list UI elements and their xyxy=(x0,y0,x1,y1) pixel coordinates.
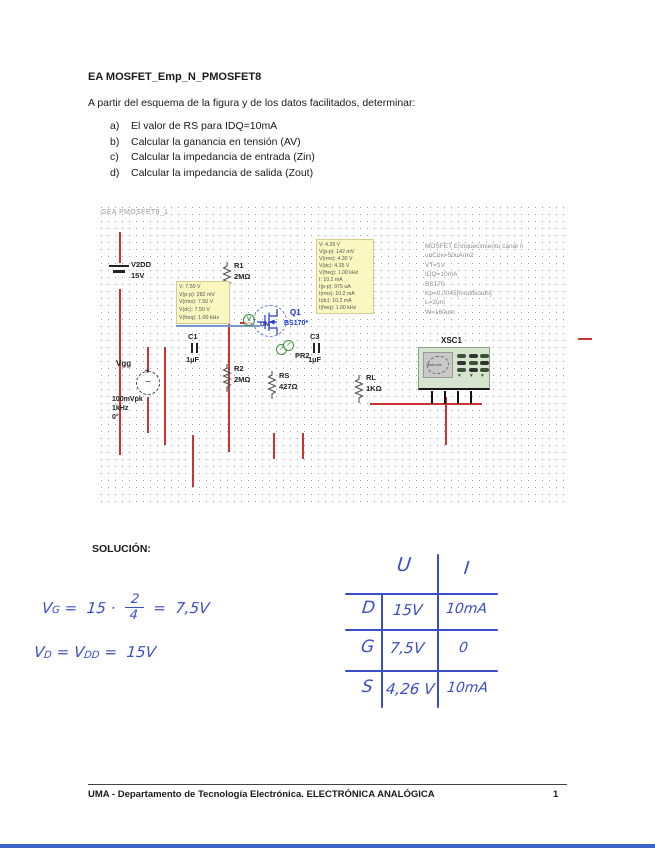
probe-line: V: 4.26 V xyxy=(319,242,371,249)
rs-ref: RS xyxy=(279,371,289,381)
scope-brand-text: Tektronix xyxy=(426,363,442,367)
probe-line: V(p-p): 282 mV xyxy=(179,292,227,300)
probe-line: V(dc): 7.50 V xyxy=(179,307,227,315)
footer-rule xyxy=(88,784,567,785)
current-probe-icon: ↗ xyxy=(283,340,294,351)
probe-line: V(rms): 4.30 V xyxy=(319,256,371,263)
scope-knob-icon: ▾ xyxy=(481,374,484,379)
row-label-d: D xyxy=(361,598,376,618)
battery-icon xyxy=(109,265,129,267)
scope-terminal xyxy=(444,391,446,404)
v2dd-ref: V2DD xyxy=(131,260,151,270)
eq-mid: = V xyxy=(51,643,85,661)
scope-knob-icon: ▾ xyxy=(458,374,461,379)
table-line xyxy=(437,554,439,708)
scope-terminal xyxy=(457,391,459,404)
row-label-g: G xyxy=(360,637,375,657)
item-label: a) xyxy=(110,120,131,136)
c1-ref: C1 xyxy=(188,332,198,342)
wire xyxy=(147,397,149,433)
probe-line: I(rms): 10.2 mA xyxy=(319,291,371,298)
scope-button xyxy=(469,368,478,372)
solution-table: U I D 15V 10mA G 7,5V 0 S 4,26 V 10mA xyxy=(345,552,513,712)
footer-text: UMA - Departamento de Tecnología Electró… xyxy=(88,789,435,800)
capacitor-icon xyxy=(191,343,193,353)
cell-s-u: 4,26 V xyxy=(385,680,435,698)
col-header-u: U xyxy=(396,554,412,576)
wire xyxy=(192,435,194,487)
probe-line: I: 10.2 mA xyxy=(319,277,371,284)
fraction: 24 xyxy=(124,592,145,623)
wire xyxy=(164,347,166,445)
probe-line: V: 7.50 V xyxy=(179,284,227,292)
vgg-phase: 0° xyxy=(112,413,119,423)
scope-button xyxy=(457,368,466,372)
fraction-denominator: 4 xyxy=(124,607,144,623)
circuit-schematic: GEA PMOSFET8_1 V2DD 15V Vgg ~ + 100mVpk … xyxy=(95,205,567,503)
row-label-s: S xyxy=(361,677,374,697)
r1-ref: R1 xyxy=(234,261,244,271)
wire xyxy=(370,403,482,405)
item-text: El valor de RS para IDQ=10mA xyxy=(131,120,277,136)
wire xyxy=(445,397,447,445)
eq-result: = 7,5V xyxy=(148,599,211,617)
plus-icon: + xyxy=(145,368,149,375)
solution-heading: SOLUCIÓN: xyxy=(92,543,151,555)
rl-ref: RL xyxy=(366,373,376,383)
rl-value: 1KΩ xyxy=(366,384,382,394)
resistor-icon xyxy=(267,371,277,399)
q1-net: DM xyxy=(260,320,270,330)
item-label: c) xyxy=(110,151,131,167)
scope-button xyxy=(469,361,478,365)
q1-value: BS170* xyxy=(284,319,308,329)
r2-value: 2MΩ xyxy=(234,375,250,385)
eq-result: = 15V xyxy=(99,643,157,661)
scope-button xyxy=(457,354,466,358)
probe-line: V(freq): 1.00 kHz xyxy=(319,270,371,277)
rs-value: 427Ω xyxy=(279,382,298,392)
probe-readout-box: V: 7.50 V V(p-p): 282 mV V(rms): 7.50 V … xyxy=(176,281,230,324)
table-line xyxy=(345,629,498,631)
eq-var-sub: D xyxy=(44,650,53,661)
oscilloscope-icon: Tektronix ▾ ▾ ▾ xyxy=(418,347,490,390)
equation-vd: VD = VDD = 15V xyxy=(33,643,157,661)
eq-mid: = 15 · xyxy=(59,599,121,617)
mosfet-parameters: MOSFET Enriquecimiento canal n unCox=50u… xyxy=(425,242,565,317)
c3-ref: C3 xyxy=(310,332,320,342)
c3-value: 1µF xyxy=(308,355,321,365)
table-line xyxy=(381,593,383,708)
param-line: W=160um xyxy=(425,308,565,317)
resistor-icon xyxy=(222,364,232,392)
cell-d-i: 10mA xyxy=(445,601,488,617)
scope-button xyxy=(469,354,478,358)
probe-line: V(freq): 1.00 kHz xyxy=(179,315,227,323)
param-line: L=2um xyxy=(425,298,565,307)
c1-value: 1µF xyxy=(186,355,199,365)
cell-s-i: 10mA xyxy=(446,680,489,696)
probe-line: V(p-p): 142 mV xyxy=(319,249,371,256)
cell-g-u: 7,5V xyxy=(389,639,425,657)
probe-line: I(dc): 10.2 mA xyxy=(319,298,371,305)
scope-button xyxy=(457,361,466,365)
r1-value: 2MΩ xyxy=(234,272,250,282)
wire xyxy=(119,289,121,455)
capacitor-icon xyxy=(313,343,315,353)
oscilloscope-screen: Tektronix xyxy=(423,352,453,378)
vgg-ref: Vgg xyxy=(116,359,131,369)
list-item: a) El valor de RS para IDQ=10mA xyxy=(110,120,315,136)
probe-line: I(p-p): 975 uA xyxy=(319,284,371,291)
param-line: MOSFET Enriquecimiento canal n xyxy=(425,242,565,251)
scope-button xyxy=(480,368,489,372)
wire xyxy=(119,232,121,263)
r2-ref: R2 xyxy=(234,364,244,374)
table-line xyxy=(345,670,498,672)
col-header-i: I xyxy=(463,558,471,579)
capacitor-icon xyxy=(196,343,198,353)
param-line: Kp=0,0045[modificado] xyxy=(425,289,565,298)
capacitor-icon xyxy=(318,343,320,353)
page-title: EA MOSFET_Emp_N_PMOSFET8 xyxy=(88,71,261,83)
item-label: d) xyxy=(110,167,131,183)
document-page: EA MOSFET_Emp_N_PMOSFET8 A partir del es… xyxy=(0,0,655,848)
window-bottom-edge xyxy=(0,844,655,848)
wire xyxy=(578,338,592,340)
page-number: 1 xyxy=(553,789,558,800)
probe-line: V(dc): 4.35 V xyxy=(319,263,371,270)
question-list: a) El valor de RS para IDQ=10mA b) Calcu… xyxy=(110,120,315,182)
schematic-title: GEA PMOSFET8_1 xyxy=(101,209,168,216)
item-text: Calcular la impedancia de entrada (Zin) xyxy=(131,151,315,167)
list-item: d) Calcular la impedancia de salida (Zou… xyxy=(110,167,315,183)
scope-button xyxy=(480,354,489,358)
equation-vg: VG = 15 · 24 = 7,5V xyxy=(41,592,211,623)
cell-g-i: 0 xyxy=(458,640,469,656)
list-item: b) Calcular la ganancia en tensión (AV) xyxy=(110,136,315,152)
v2dd-value: 15V xyxy=(131,271,144,281)
fraction-numerator: 2 xyxy=(130,592,140,607)
wire xyxy=(302,433,304,459)
item-text: Calcular la ganancia en tensión (AV) xyxy=(131,136,301,152)
param-line: BS170 xyxy=(425,280,565,289)
scope-button xyxy=(480,361,489,365)
pr2-ref: PR2 xyxy=(295,351,310,361)
eq-mid-sub: DD xyxy=(84,650,100,661)
intro-text: A partir del esquema de la figura y de l… xyxy=(88,97,415,109)
list-item: c) Calcular la impedancia de entrada (Zi… xyxy=(110,151,315,167)
scope-knob-icon: ▾ xyxy=(470,374,473,379)
battery-icon xyxy=(113,270,125,273)
item-text: Calcular la impedancia de salida (Zout) xyxy=(131,167,313,183)
eq-var-sub: G xyxy=(52,605,61,616)
scope-terminal xyxy=(470,391,472,404)
table-line xyxy=(345,593,498,595)
item-label: b) xyxy=(110,136,131,152)
resistor-icon xyxy=(354,375,364,403)
cell-d-u: 15V xyxy=(392,601,423,619)
wire xyxy=(273,433,275,459)
scope-terminal xyxy=(431,391,433,404)
q1-ref: Q1 xyxy=(290,308,301,318)
xsc1-ref: XSC1 xyxy=(441,336,462,346)
param-line: unCox=50uA/m2 xyxy=(425,251,565,260)
param-line: IDQ=10mA xyxy=(425,270,565,279)
probe-line: V(rms): 7.50 V xyxy=(179,299,227,307)
probe-readout-box: V: 4.26 V V(p-p): 142 mV V(rms): 4.30 V … xyxy=(316,239,374,314)
param-line: VT=1V xyxy=(425,261,565,270)
probe-line: I(freq): 1.00 kHz xyxy=(319,305,371,312)
